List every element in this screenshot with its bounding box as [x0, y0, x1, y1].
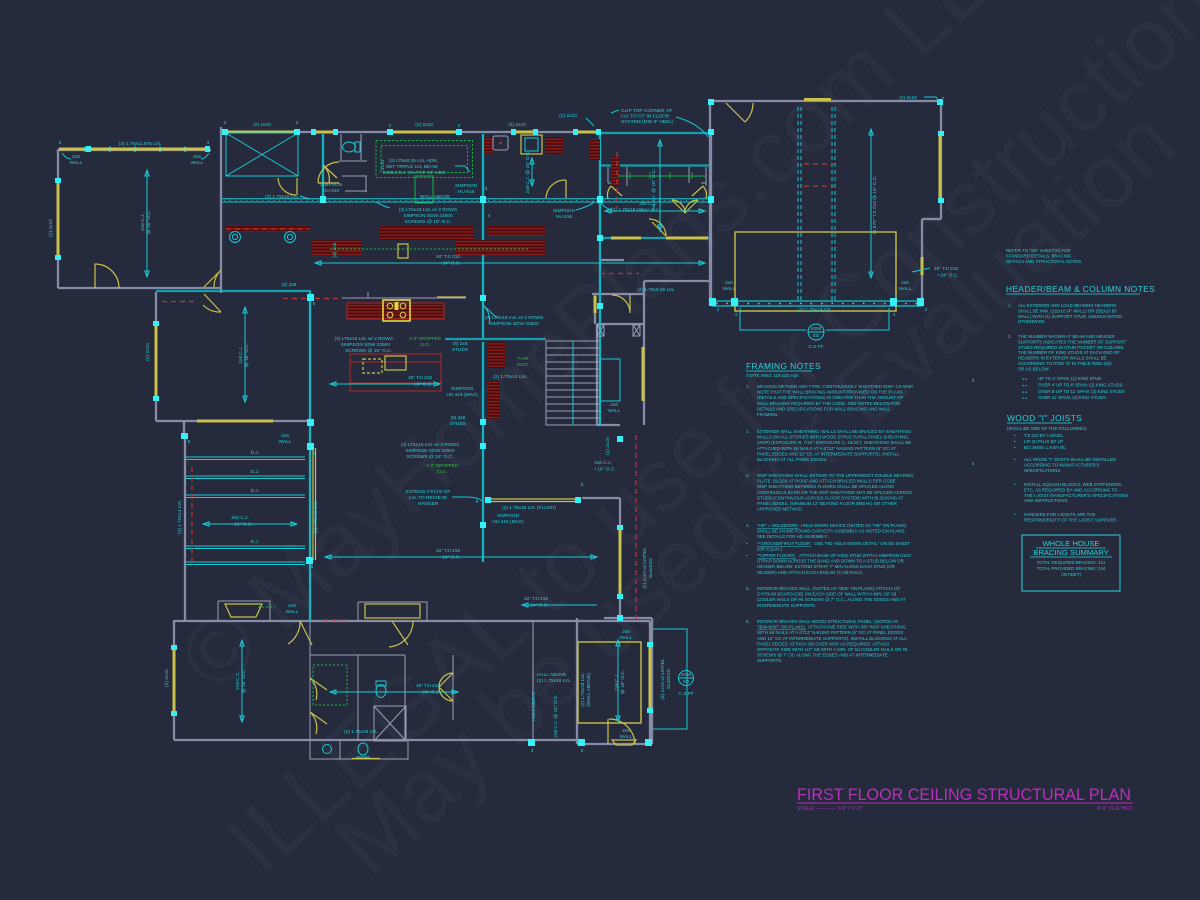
svg-text:2x8 C.J.: 2x8 C.J. — [238, 346, 244, 364]
svg-text:HALL ABOVE: HALL ABOVE — [537, 672, 566, 678]
svg-text:(2) 2x8: (2) 2x8 — [282, 282, 297, 288]
svg-text:(3) 2x10 w/ LINTEL: (3) 2x10 w/ LINTEL — [660, 658, 666, 700]
svg-text:(WALL ABOVE): (WALL ABOVE) — [586, 673, 592, 707]
svg-text:(2) 1.75x14 LVL: (2) 1.75x14 LVL — [177, 500, 183, 534]
svg-text:WOOD "I" JOISTS: WOOD "I" JOISTS — [1007, 413, 1082, 423]
svg-text:HU 416 (MAX): HU 416 (MAX) — [492, 519, 524, 525]
svg-text:D.J.: D.J. — [251, 450, 260, 456]
svg-text:(2) 2x10 w/ LINTEL: (2) 2x10 w/ LINTEL — [642, 547, 648, 589]
svg-text:2: 2 — [389, 123, 392, 129]
svg-text:SIMPSON: SIMPSON — [320, 182, 343, 188]
svg-text:• 24" O.C.: • 24" O.C. — [527, 603, 548, 609]
svg-text:• 24" O.C.: • 24" O.C. — [439, 555, 460, 561]
svg-text:(3) LT5x20 LVL: (3) LT5x20 LVL — [313, 500, 319, 533]
svg-text:(2) 1.75x9.25 LVL: (2) 1.75x9.25 LVL — [637, 287, 675, 293]
svg-text:(2) 1.75x18 LVL: (2) 1.75x18 LVL — [493, 374, 527, 380]
svg-text:D.J.: D.J. — [251, 488, 260, 494]
svg-text:HU 616: HU 616 — [323, 188, 340, 194]
svg-text:16" TJI 210: 16" TJI 210 — [416, 683, 441, 689]
svg-text:5: 5 — [311, 564, 314, 570]
svg-text:WALL: WALL — [620, 635, 633, 641]
svg-text:2: 2 — [717, 307, 720, 313]
svg-text:SCREWS @ 16" O.C.: SCREWS @ 16" O.C. — [407, 454, 454, 460]
svg-text:2.: 2. — [1008, 334, 1012, 339]
svg-text:SIMPSON: SIMPSON — [451, 386, 474, 392]
svg-text:1.: 1. — [746, 384, 750, 389]
svg-text:SIMPSON: SIMPSON — [553, 208, 576, 214]
svg-text:(2) 2x10: (2) 2x10 — [164, 669, 170, 687]
svg-text:2x8 C.J. @ 16" O.C.: 2x8 C.J. @ 16" O.C. — [525, 150, 531, 193]
svg-text:4058: 4058 — [811, 326, 822, 332]
svg-text:C.S FF: C.S FF — [808, 344, 823, 350]
svg-text:4.: 4. — [746, 523, 750, 528]
svg-text:16" TJI 210: 16" TJI 210 — [934, 266, 959, 272]
svg-text:TOTAL PROVIDED BRACING: 244: TOTAL PROVIDED BRACING: 244 — [1037, 566, 1106, 571]
svg-text:2x8 C.J.: 2x8 C.J. — [231, 515, 249, 521]
svg-text:4058: 4058 — [681, 672, 692, 678]
svg-text:3: 3 — [972, 378, 975, 384]
svg-text:6.: 6. — [746, 619, 750, 624]
svg-text:WALL: WALL — [191, 160, 204, 166]
svg-text:WSP SHEATHING SHALL EXTEND TO: WSP SHEATHING SHALL EXTEND TO THE UPPERM… — [757, 473, 914, 512]
svg-text:(2) 2x10: (2) 2x10 — [48, 219, 54, 237]
svg-text:(2) 2x10: (2) 2x10 — [415, 122, 433, 128]
svg-text:(2) 2x10: (2) 2x10 — [899, 95, 917, 101]
svg-text:(3) 1.75x14 LVL: (3) 1.75x14 LVL — [798, 307, 832, 313]
svg-text:WALL: WALL — [70, 160, 83, 166]
svg-text:D.J.: D.J. — [251, 469, 260, 475]
svg-text:(3) LT5x18 LVL w/ 2 ROWS: (3) LT5x18 LVL w/ 2 ROWS — [401, 442, 460, 448]
svg-text:3: 3 — [531, 748, 534, 754]
svg-text:(2) LT5x9.25 LVL HDR,: (2) LT5x9.25 LVL HDR, — [389, 158, 438, 164]
svg-text:(2) 2x10: (2) 2x10 — [145, 343, 151, 361]
svg-text:SIMPSON SDW 22500: SIMPSON SDW 22500 — [405, 448, 455, 454]
svg-text:6x4x5/16: 6x4x5/16 — [666, 669, 672, 689]
svg-text:TOTAL REQUIRED BRACING: 112: TOTAL REQUIRED BRACING: 112 — [1037, 560, 1106, 565]
svg-text:2x6: 2x6 — [72, 154, 80, 160]
svg-text:4: 4 — [972, 461, 975, 467]
svg-text:SYSTEM (MIN 8" HEEL): SYSTEM (MIN 8" HEEL) — [621, 119, 674, 125]
svg-text:WALL: WALL — [620, 734, 633, 740]
svg-text:• 24" O.C.: • 24" O.C. — [937, 273, 958, 279]
svg-text:WALL: WALL — [286, 609, 299, 615]
svg-text:3: 3 — [207, 140, 210, 146]
svg-text:(2) 1.75x18 LVL: (2) 1.75x18 LVL — [265, 194, 299, 200]
svg-text:WALL: WALL — [279, 439, 292, 445]
svg-text:(2) 2x10: (2) 2x10 — [253, 122, 271, 128]
svg-text:• 24" O.C.: • 24" O.C. — [439, 261, 460, 267]
svg-text:5: 5 — [476, 499, 479, 505]
svg-text:LVL TO RECIEVE: LVL TO RECIEVE — [409, 495, 447, 501]
svg-text:1'-0" DROPPED: 1'-0" DROPPED — [426, 463, 458, 468]
svg-text:2.: 2. — [746, 429, 750, 434]
svg-text:SCREWS @ 16" O.C.: SCREWS @ 16" O.C. — [405, 219, 452, 225]
svg-text:(2) 1.75x18 LVL (FLUSH): (2) 1.75x18 LVL (FLUSH) — [502, 505, 556, 511]
svg-text:STATE Wind: 115-120 mph: STATE Wind: 115-120 mph — [746, 373, 799, 378]
svg-text:2x6: 2x6 — [610, 402, 618, 408]
svg-text:CLIP TOP CORNER OF: CLIP TOP CORNER OF — [621, 108, 673, 114]
svg-text:2: 2 — [224, 120, 227, 126]
svg-text:FIRST FLOOR CEILING STRUCTURAL: FIRST FLOOR CEILING STRUCTURAL PLAN — [797, 785, 1131, 804]
svg-text:(3) 2x6: (3) 2x6 — [332, 242, 338, 257]
svg-text:5: 5 — [581, 482, 584, 488]
svg-text:16" TJI 210: 16" TJI 210 — [524, 596, 549, 602]
svg-text:(SHALL BE ONE OF THE FOLLOWING: (SHALL BE ONE OF THE FOLLOWING): — [1007, 426, 1088, 431]
svg-text:HU 616: HU 616 — [556, 214, 573, 220]
svg-text:2x6: 2x6 — [901, 280, 909, 286]
svg-text:SIMPSON SDW 22500: SIMPSON SDW 22500 — [341, 342, 391, 348]
svg-text:8'-0" CLG. HGT.: 8'-0" CLG. HGT. — [1097, 806, 1133, 812]
svg-text:3: 3 — [485, 186, 488, 192]
svg-text:7: 7 — [942, 96, 945, 102]
svg-text:STUDS: STUDS — [452, 347, 468, 353]
svg-text:2x8 C.J.: 2x8 C.J. — [235, 672, 241, 690]
svg-text:• 16" O.C.: • 16" O.C. — [231, 522, 252, 528]
svg-text:DIRECTLY ON TOP OF HDR: DIRECTLY ON TOP OF HDR — [383, 170, 446, 176]
svg-text:(2) 1.75x18 LVL: (2) 1.75x18 LVL — [580, 673, 586, 707]
svg-text:Y-AIR: Y-AIR — [517, 356, 528, 361]
svg-text:@ 16" O.C.: @ 16" O.C. — [244, 343, 250, 367]
svg-text:2x6: 2x6 — [193, 154, 201, 160]
svg-text:(2) 2x10: (2) 2x10 — [605, 437, 611, 455]
svg-text:HALL ABOVE: HALL ABOVE — [531, 691, 537, 720]
svg-text:16" TJI 210: 16" TJI 210 — [436, 548, 461, 554]
svg-text:C.S FF: C.S FF — [678, 691, 693, 697]
svg-text:5: 5 — [313, 451, 316, 457]
svg-text:SET TRIPLE LVL BEAM: SET TRIPLE LVL BEAM — [386, 164, 438, 170]
svg-text:6x4x5/16: 6x4x5/16 — [648, 558, 654, 578]
svg-text:5.: 5. — [746, 586, 750, 591]
svg-text:2x6: 2x6 — [622, 629, 630, 635]
svg-text:INTERIOR BRACED WALL-WOOD STRU: INTERIOR BRACED WALL-WOOD STRUCTURAL PAN… — [757, 619, 908, 663]
svg-text:2: 2 — [458, 123, 461, 129]
svg-text:(2) 1.75x18 LVL: (2) 1.75x18 LVL — [537, 678, 571, 684]
svg-text:2x8 C.J. @ 16" O.C.: 2x8 C.J. @ 16" O.C. — [553, 694, 559, 737]
svg-text:SIMPSON SDW 22500: SIMPSON SDW 22500 — [403, 213, 453, 219]
svg-text:5: 5 — [602, 236, 605, 242]
svg-text:SIMPSON: SIMPSON — [455, 183, 478, 189]
svg-text:(5) 2x6: (5) 2x6 — [453, 341, 468, 347]
svg-text:SIMPSON: SIMPSON — [497, 513, 520, 519]
svg-text:1.: 1. — [1008, 303, 1012, 308]
svg-text:1'-0" DROPPED: 1'-0" DROPPED — [409, 336, 441, 341]
svg-text:4: 4 — [735, 312, 738, 318]
svg-text:2x6: 2x6 — [622, 728, 630, 734]
svg-text:4: 4 — [893, 312, 896, 318]
svg-text:SCREWS @ 16" O.C.: SCREWS @ 16" O.C. — [345, 348, 392, 354]
svg-text:EXTEND 2 PLYS OF: EXTEND 2 PLYS OF — [406, 489, 451, 495]
svg-text:(2) 1.75x18 LVL: (2) 1.75x18 LVL — [344, 729, 378, 735]
svg-text:• 16" O.C.: • 16" O.C. — [594, 467, 615, 473]
svg-text:16" TJI 210: 16" TJI 210 — [408, 375, 433, 381]
svg-text:2x8: 2x8 — [288, 603, 296, 609]
svg-text:• 24" O.C.: • 24" O.C. — [419, 690, 440, 696]
svg-text:WALL: WALL — [608, 408, 621, 414]
svg-text:(2) 2x10: (2) 2x10 — [559, 113, 577, 119]
svg-text:(3) LT5x18 LVL w/ 2 ROWS: (3) LT5x18 LVL w/ 2 ROWS — [334, 336, 393, 342]
svg-text:@ 16" O.C.: @ 16" O.C. — [241, 669, 247, 693]
svg-text:2x8 C.J.: 2x8 C.J. — [140, 213, 146, 231]
svg-text:DUCT: DUCT — [517, 362, 530, 367]
svg-text:WALL: WALL — [723, 286, 736, 292]
svg-text:2: 2 — [296, 120, 299, 126]
svg-text:SD: SD — [683, 679, 690, 685]
svg-text:4: 4 — [488, 213, 491, 219]
svg-text:(5) 2x6: (5) 2x6 — [451, 415, 466, 421]
svg-text:2x6: 2x6 — [725, 280, 733, 286]
svg-text:WALL: WALL — [899, 286, 912, 292]
svg-text:2: 2 — [925, 307, 928, 313]
svg-text:BRACING SUMMARY: BRACING SUMMARY — [1033, 548, 1108, 557]
svg-text:HANGER: HANGER — [418, 501, 439, 507]
svg-text:SIMPSON SDW 22500: SIMPSON SDW 22500 — [489, 321, 539, 327]
svg-text:CLG.: CLG. — [437, 469, 447, 474]
svg-text:(3) LT5x18 LVL w/ 2 ROWS: (3) LT5x18 LVL w/ 2 ROWS — [485, 315, 544, 321]
svg-text:FRAMING NOTES: FRAMING NOTES — [746, 361, 821, 371]
svg-text:SCALE: ------------ 1/4" = 1'-: SCALE: ------------ 1/4" = 1'-0" — [797, 806, 862, 812]
svg-text:• 24" O.C.: • 24" O.C. — [411, 382, 432, 388]
svg-text:(3) 1.75x11.875 LVL: (3) 1.75x11.875 LVL — [119, 141, 162, 147]
svg-text:2x8 C.J. @ 16" O.C.: 2x8 C.J. @ 16" O.C. — [651, 168, 657, 211]
svg-text:16" TJI 210: 16" TJI 210 — [436, 254, 461, 260]
svg-text:HU 416 (MAX): HU 416 (MAX) — [446, 392, 478, 398]
svg-text:CLG.: CLG. — [420, 342, 430, 347]
svg-text:2: 2 — [581, 748, 584, 754]
svg-text:5: 5 — [188, 439, 191, 445]
svg-text:(IN FEET): (IN FEET) — [1061, 572, 1081, 577]
svg-text:2x10: 2x10 — [380, 159, 386, 170]
svg-text:@ 16" O.C.: @ 16" O.C. — [146, 210, 152, 234]
svg-text:3.: 3. — [746, 473, 750, 478]
svg-text:(2) 2x10: (2) 2x10 — [508, 122, 526, 128]
svg-text:LVL TO FIT IN FLOOR: LVL TO FIT IN FLOOR — [621, 114, 670, 120]
svg-text:3: 3 — [59, 140, 62, 146]
svg-text:2x6 C.J.: 2x6 C.J. — [594, 460, 612, 466]
svg-text:2x6: 2x6 — [281, 433, 289, 439]
svg-text:(2) 1.75x18 LVL: (2) 1.75x18 LVL — [611, 207, 645, 213]
svg-text:2x8 C.J.: 2x8 C.J. — [614, 673, 620, 691]
svg-text:HU 616: HU 616 — [458, 189, 475, 195]
svg-text:SD: SD — [813, 333, 820, 339]
svg-text:@ 16" O.C.: @ 16" O.C. — [620, 670, 626, 694]
svg-text:(3) LT5x18 LVL w/ 2 ROWS: (3) LT5x18 LVL w/ 2 ROWS — [399, 207, 458, 213]
svg-text:WHOLE HOUSE: WHOLE HOUSE — [1043, 539, 1100, 548]
svg-text:11.875" TJI 210 @ 16" O.C.: 11.875" TJI 210 @ 16" O.C. — [872, 175, 878, 234]
svg-text:5: 5 — [313, 301, 316, 307]
svg-text:HEADER/BEAM & COLUMN NOTES: HEADER/BEAM & COLUMN NOTES — [1006, 284, 1155, 294]
svg-text:WALL ABOVE: WALL ABOVE — [420, 194, 450, 200]
svg-text:D.J.: D.J. — [251, 539, 260, 545]
svg-text:THE NUMBER SHOWN AT BEAM AND H: THE NUMBER SHOWN AT BEAM AND HEADERSUPPO… — [1018, 334, 1127, 371]
svg-text:STUDS: STUDS — [450, 421, 466, 427]
